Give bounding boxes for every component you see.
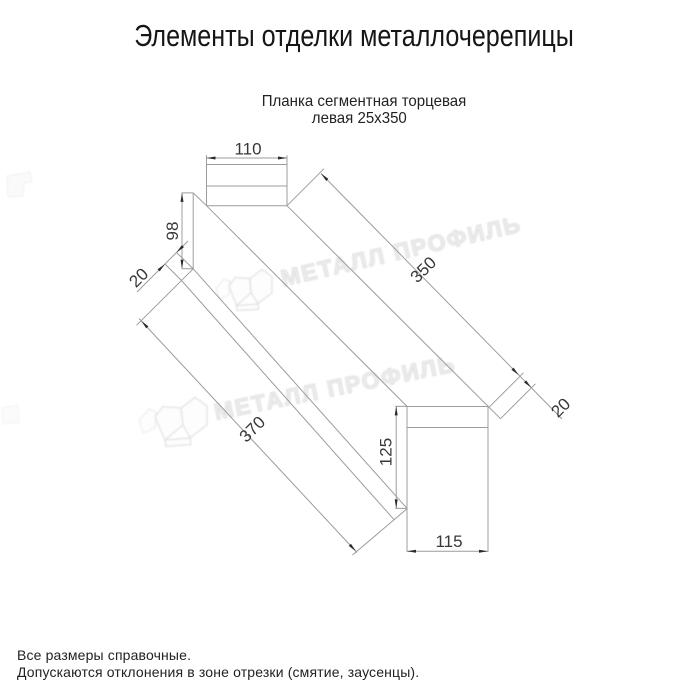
svg-text:20: 20 xyxy=(125,264,152,291)
svg-text:98: 98 xyxy=(163,222,182,241)
svg-text:125: 125 xyxy=(377,438,396,466)
svg-text:115: 115 xyxy=(435,532,462,551)
svg-text:МЕТАЛЛ ПРОФИЛЬ: МЕТАЛЛ ПРОФИЛЬ xyxy=(212,350,458,425)
svg-text:110: 110 xyxy=(234,140,261,159)
svg-text:20: 20 xyxy=(547,394,574,421)
svg-text:МЕТАЛЛ ПРОФИЛЬ: МЕТАЛЛ ПРОФИЛЬ xyxy=(278,211,524,292)
